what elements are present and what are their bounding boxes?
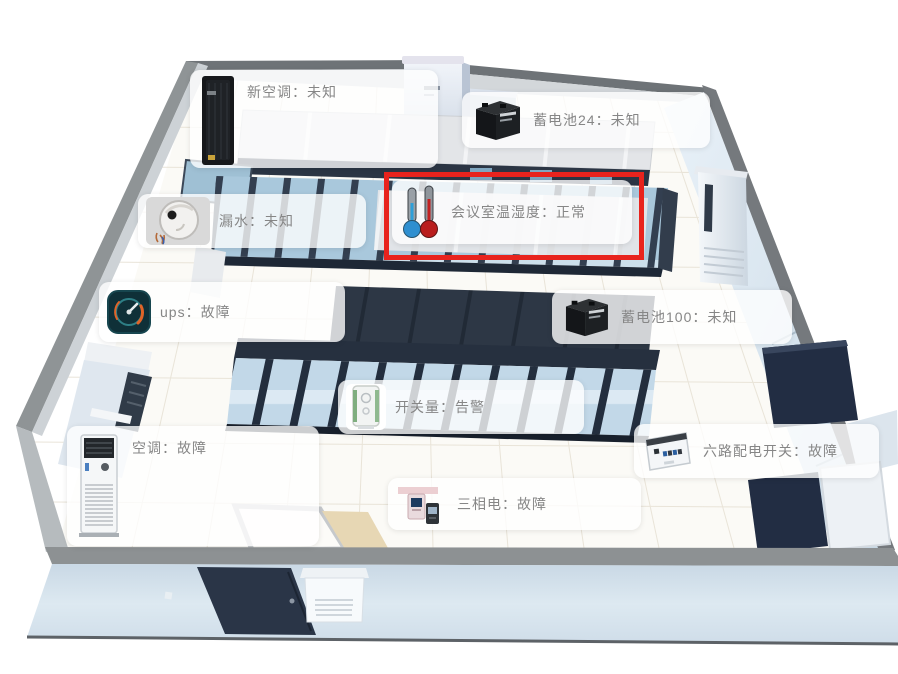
switch-device-icon: [346, 384, 386, 430]
device-tooltip-six-way-power-switch[interactable]: 六路配电开关：故障: [634, 424, 879, 478]
highlight-box: 会议室温湿度：正常: [384, 172, 644, 260]
device-label: 会议室温湿度：正常: [451, 204, 586, 221]
device-label: 蓄电池24：未知: [533, 112, 641, 129]
distribution-box-icon: [642, 429, 694, 473]
device-tooltip-battery-24[interactable]: 蓄电池24：未知: [462, 92, 710, 148]
front-wall: [27, 547, 898, 644]
device-tooltip-new-air-conditioner[interactable]: 新空调：未知: [190, 70, 438, 168]
device-label: 开关量：告警: [395, 399, 485, 416]
battery-icon: [560, 296, 612, 338]
gauge-icon: [107, 289, 151, 335]
leak-sensor-icon: [146, 197, 210, 245]
device-tooltip-switch-signal[interactable]: 开关量：告警: [338, 380, 584, 434]
battery-icon: [470, 98, 524, 142]
outside-cabinet: [300, 568, 369, 622]
device-label: 三相电：故障: [457, 496, 547, 513]
device-tooltip-meeting-room-temp-humidity[interactable]: 会议室温湿度：正常: [392, 180, 632, 244]
device-label: ups：故障: [160, 304, 231, 321]
device-tooltip-air-conditioner[interactable]: 空调：故障: [67, 426, 319, 546]
machine-room-3d-view: 新空调：未知 蓄电池24：未知 会议室温湿度：正常: [0, 0, 898, 674]
device-tooltip-water-leak[interactable]: 漏水：未知: [138, 194, 366, 248]
device-tooltip-three-phase-power[interactable]: 三相电：故障: [388, 478, 641, 530]
power-meter-icon: [396, 482, 448, 526]
device-label: 新空调：未知: [247, 75, 337, 101]
device-label: 六路配电开关：故障: [703, 443, 838, 460]
device-label: 空调：故障: [132, 431, 207, 457]
device-label: 蓄电池100：未知: [621, 309, 737, 326]
thermometer-icon: [400, 185, 442, 239]
wall-ac-unit-right: [694, 166, 748, 286]
floor-ac-icon: [75, 431, 123, 539]
device-tooltip-battery-100[interactable]: 蓄电池100：未知: [552, 290, 792, 344]
device-tooltip-ups[interactable]: ups：故障: [99, 282, 345, 342]
device-label: 漏水：未知: [219, 213, 294, 230]
ac-tower-icon: [198, 75, 238, 167]
